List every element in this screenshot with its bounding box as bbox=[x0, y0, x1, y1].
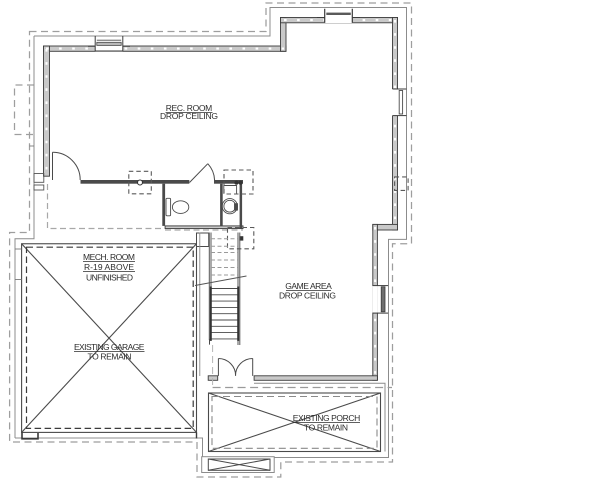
svg-text:MECH. ROOM: MECH. ROOM bbox=[83, 252, 135, 262]
svg-text:EXISTING PORCH: EXISTING PORCH bbox=[293, 413, 361, 423]
svg-text:R-19 ABOVE: R-19 ABOVE bbox=[84, 262, 134, 272]
svg-text:TO REMAIN: TO REMAIN bbox=[304, 423, 348, 433]
svg-text:TO REMAIN: TO REMAIN bbox=[88, 352, 132, 362]
svg-text:DROP CEILING: DROP CEILING bbox=[279, 291, 336, 301]
svg-text:UNFINISHED: UNFINISHED bbox=[86, 273, 133, 283]
svg-text:EXISTING GARAGE: EXISTING GARAGE bbox=[74, 342, 145, 352]
svg-text:GAME AREA: GAME AREA bbox=[285, 281, 332, 291]
